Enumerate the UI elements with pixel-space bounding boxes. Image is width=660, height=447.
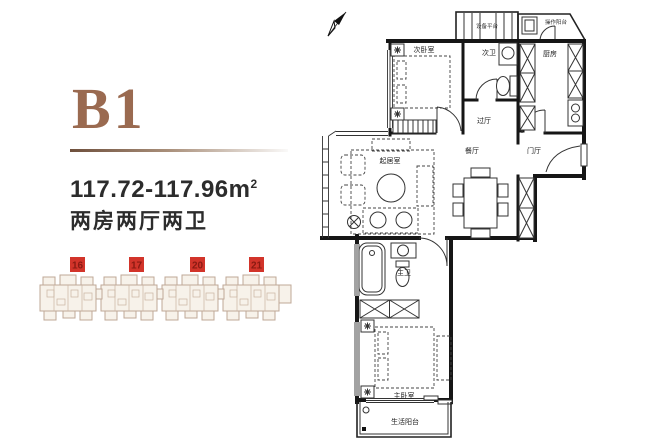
label-kitchen: 厨房 <box>543 49 557 58</box>
label-second-bath: 次卫 <box>482 48 496 57</box>
floorplan-drawing: 设备平台 操作阳台 次卧室 次卫 厨房 过厅 餐厅 门厅 起居室 主卫 主卧室 … <box>320 0 660 447</box>
label-master-bath: 主卫 <box>397 268 411 277</box>
label-pass-hall: 过厅 <box>477 116 491 125</box>
unit-layout: 两房两厅两卫 <box>70 205 208 235</box>
master-closet <box>360 300 419 318</box>
master-bath-fixtures <box>359 243 416 295</box>
label-second-bedroom: 次卧室 <box>414 45 435 54</box>
unit-title: B1 <box>72 80 146 138</box>
dining-table <box>453 168 508 238</box>
area-superscript: 2 <box>251 177 258 191</box>
building-badge-16: 16 <box>70 257 85 272</box>
badge-label-17: 17 <box>131 261 143 272</box>
label-life-balcony: 生活阳台 <box>391 417 419 426</box>
badge-label-20: 20 <box>192 261 204 272</box>
entry-door-leaf <box>581 144 587 166</box>
unit-area: 117.72-117.96m2 <box>70 176 258 204</box>
work-balcony <box>518 14 585 41</box>
title-divider <box>70 149 288 152</box>
label-work-balcony: 操作阳台 <box>545 18 568 26</box>
building-badge-20: 20 <box>190 257 205 272</box>
doors <box>419 79 587 404</box>
exterior-walls <box>322 41 584 402</box>
foyer-closet <box>519 178 534 238</box>
second-bedroom-furniture <box>391 44 450 133</box>
building-keyplan: 16 17 20 21 <box>32 255 297 327</box>
label-dining-room: 餐厅 <box>465 146 479 155</box>
label-equipment-platform: 设备平台 <box>476 22 499 30</box>
living-room-furniture <box>341 139 434 234</box>
label-master-bedroom: 主卧室 <box>394 391 415 400</box>
floorplan-page: B1 117.72-117.96m2 两房两厅两卫 <box>0 0 660 447</box>
second-bath-fixtures <box>497 43 518 96</box>
label-living-room: 起居室 <box>380 156 401 165</box>
building-row <box>40 275 291 320</box>
area-value: 117.72-117.96m <box>70 176 251 203</box>
badge-label-21: 21 <box>251 261 263 272</box>
north-arrow-icon <box>328 12 346 36</box>
label-entry-hall: 门厅 <box>527 146 541 155</box>
building-badge-17: 17 <box>129 257 144 272</box>
master-bedroom-furniture <box>361 320 451 398</box>
building-badge-21: 21 <box>249 257 264 272</box>
badge-label-16: 16 <box>72 261 84 272</box>
